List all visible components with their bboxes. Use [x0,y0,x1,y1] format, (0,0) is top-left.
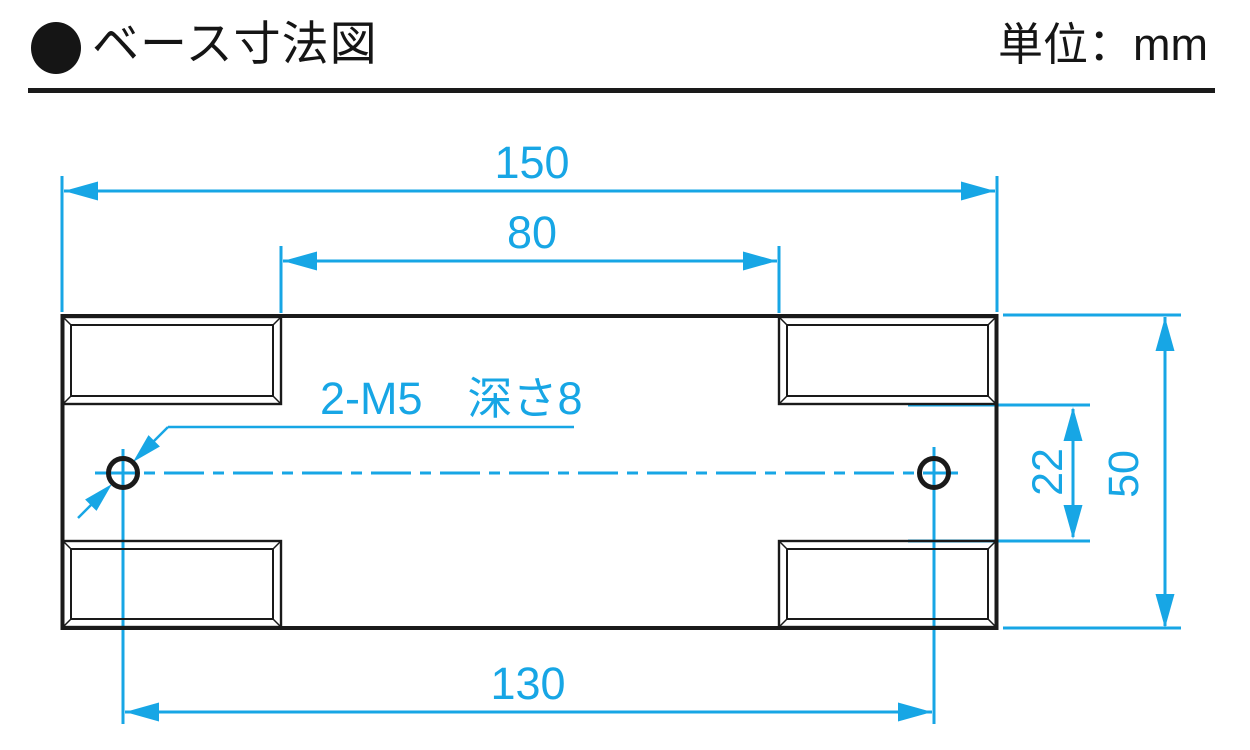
slot-bottom-left-outer [63,541,281,627]
base-dimension-drawing: 150 80 130 50 22 2-M5 深さ8 [0,0,1250,750]
dimension-lines [64,191,1165,712]
dim-text-top-slot-span: 80 [507,207,557,258]
slot-top-left-inner [71,325,273,396]
dim-text-hole-pitch: 130 [490,658,565,709]
slot-bottom-right-outer [779,541,996,627]
slot-bottom-right-chamfers [779,541,996,627]
slot-top-right-inner [787,325,988,396]
slot-bottom-right-inner [787,549,988,619]
arrow-130-left [125,703,159,722]
arrow-80-left [283,252,317,271]
arrow-50-top [1156,317,1175,351]
slot-bottom-left [63,541,281,627]
hole-note-text: 2-M5 深さ8 [320,373,583,424]
slot-top-left-outer [63,317,281,404]
arrow-150-left [64,182,98,201]
extension-lines [62,176,1181,724]
page: ベース寸法図 単位：mm [0,0,1250,750]
arrow-50-bottom [1156,594,1175,628]
slot-bottom-left-chamfers [63,541,281,627]
slot-top-left-chamfers [63,317,281,404]
dim-text-overall-width: 150 [494,137,569,188]
dim-text-slot-edge-gap: 22 [1024,448,1072,496]
arrow-130-right [898,703,932,722]
slot-top-left [63,317,281,404]
slot-bottom-right [779,541,996,627]
arrow-80-right [743,252,777,271]
arrow-22-bottom [1064,505,1083,539]
slot-top-right-chamfers [779,317,996,404]
arrow-150-right [961,182,995,201]
dim-text-overall-height: 50 [1100,450,1148,498]
arrow-22-top [1064,407,1083,441]
slot-top-right [779,317,996,404]
slot-top-right-outer [779,317,996,404]
slot-bottom-left-inner [71,549,273,619]
